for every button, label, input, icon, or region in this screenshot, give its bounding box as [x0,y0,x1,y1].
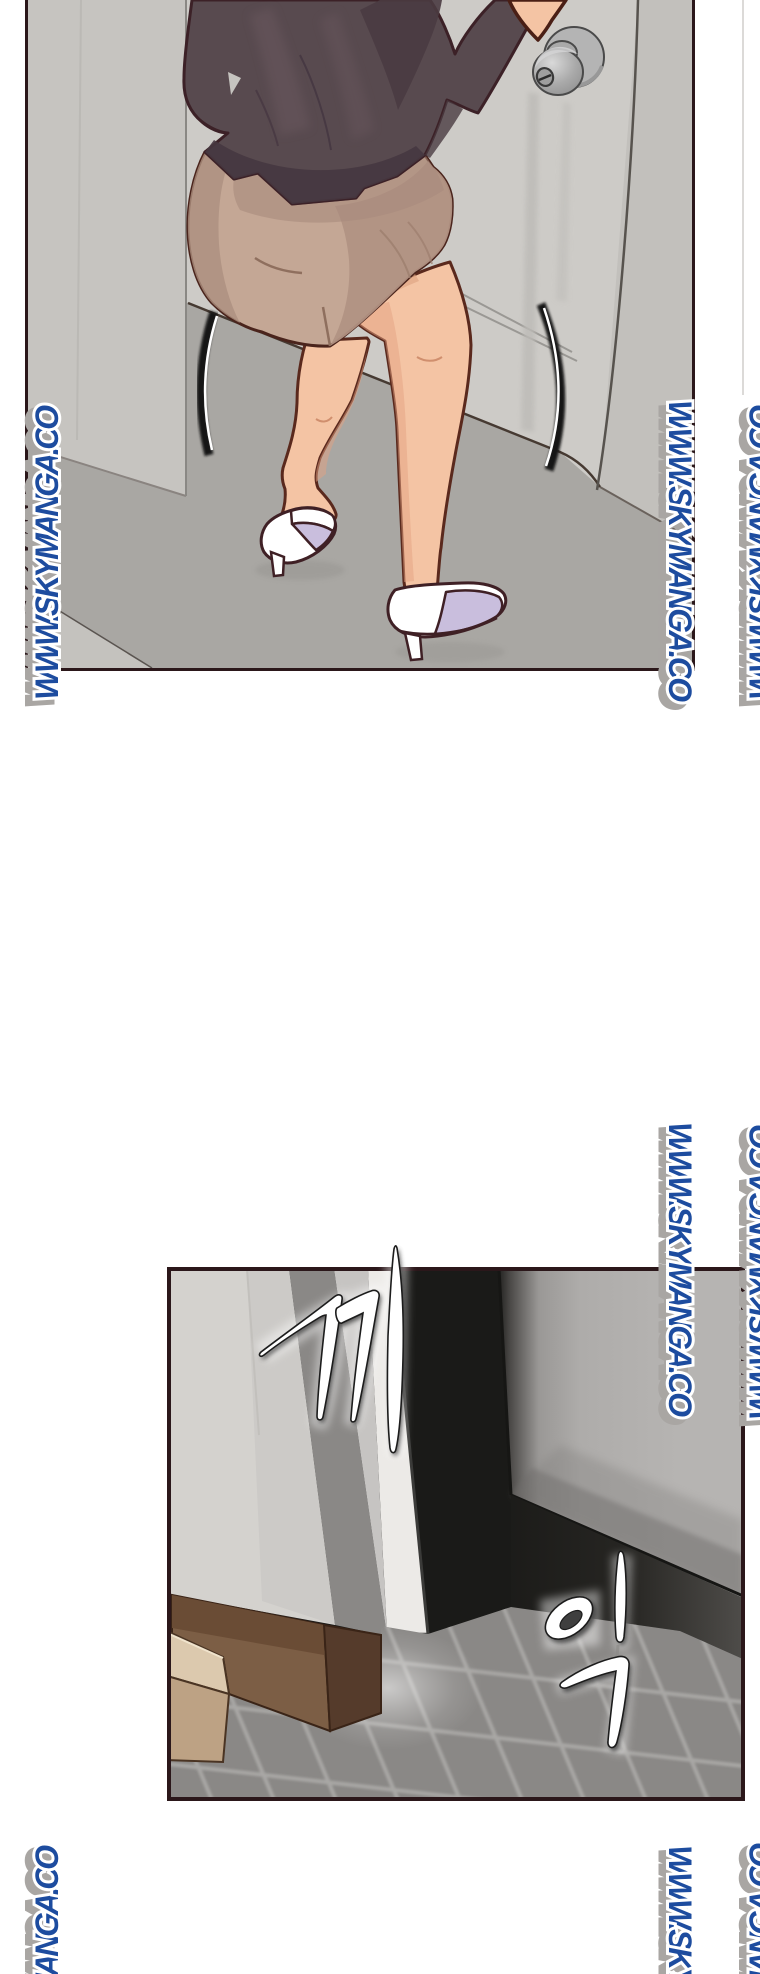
svg-text:WWW.SKYMANGA.CO: WWW.SKYMANGA.CO [29,405,65,700]
svg-text:WWW.SKYMANGA.CO: WWW.SKYMANGA.CO [662,400,698,702]
svg-text:WWW.SKYMANGA.CO: WWW.SKYMANGA.CO [662,1122,698,1417]
svg-text:WWW.SKYMANGA.CO: WWW.SKYMANGA.CO [743,1125,760,1420]
svg-text:WWW.SKYMANGA.CO: WWW.SKYMANGA.CO [743,405,760,700]
svg-text:WWW.SKYMANGA.CO: WWW.SKYMANGA.CO [743,1843,760,1974]
svg-text:WWW.SKYMANGA.CO: WWW.SKYMANGA.CO [662,1845,698,1974]
svg-text:WWW.SKYMANGA.CO: WWW.SKYMANGA.CO [29,1845,65,1974]
